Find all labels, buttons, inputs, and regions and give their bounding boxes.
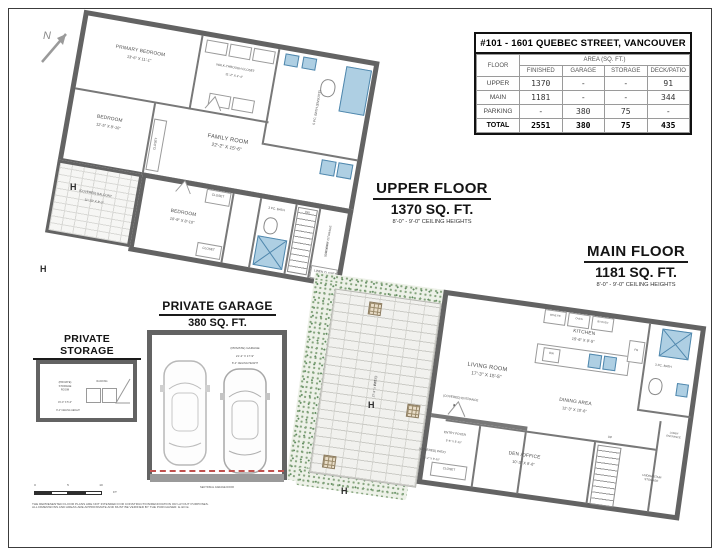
sink xyxy=(587,354,602,370)
main-floor-ceiling: 8'-0" - 9'-0" CEILING HEIGHTS xyxy=(556,282,716,288)
floorplan-page: N #101 - 1601 QUEBEC STREET, VANCOUVER F… xyxy=(0,0,720,556)
upper-floor-title: UPPER FLOOR xyxy=(373,180,491,200)
hose-bib-marker: H xyxy=(40,264,47,274)
col-finished: FINISHED xyxy=(520,66,563,77)
table-header-area: AREA (SQ. FT.) xyxy=(520,55,690,66)
disclaimer: THE REPRESENTED FLOOR PLANS ARE NOT INTE… xyxy=(32,503,372,512)
garage-box: (PRIVATE) GARAGE 21'-2" X 17'-9" 8'-2" C… xyxy=(147,330,287,480)
area-table: #101 - 1601 QUEBEC STREET, VANCOUVER FLO… xyxy=(474,32,692,135)
planter xyxy=(406,404,421,419)
sink xyxy=(602,356,617,372)
shower xyxy=(659,328,693,360)
upper-floor-area: 1370 SQ. FT. xyxy=(348,201,516,217)
table-row-parking: PARKING - 380 75 - xyxy=(477,105,690,119)
door-swing xyxy=(204,94,224,112)
racking-unit xyxy=(86,388,101,403)
hose-bib-marker: H xyxy=(368,400,375,410)
door-swing xyxy=(446,399,468,418)
sink xyxy=(284,53,300,67)
door-swing xyxy=(174,178,194,195)
table-row-upper: UPPER 1370 - - 91 xyxy=(477,77,690,91)
garage-door-line xyxy=(150,470,284,472)
storage-box: (PRIVATE) STORAGE ROOM 15'-0" X 5'-0" 8'… xyxy=(36,360,137,422)
shower xyxy=(253,235,288,270)
main-floor-area: 1181 SQ. FT. xyxy=(552,264,720,280)
table-header-floor: FLOOR xyxy=(477,55,520,77)
storage-room-label: (PRIVATE) STORAGE ROOM 15'-0" X 5'-0" 8'… xyxy=(42,374,88,414)
garage-title: PRIVATE GARAGE xyxy=(159,299,275,316)
table-row-total: TOTAL 2551 380 75 435 xyxy=(477,119,690,133)
main-floor-heading: MAIN FLOOR 1181 SQ. FT. 8'-0" - 9'-0" CE… xyxy=(552,243,720,288)
garage-area: 380 SQ. FT. xyxy=(145,317,290,329)
upper-floor-ceiling: 8'-0" - 9'-0" CEILING HEIGHTS xyxy=(352,219,512,225)
sink xyxy=(301,56,317,70)
address-title: #101 - 1601 QUEBEC STREET, VANCOUVER xyxy=(476,34,690,54)
garage-heading: PRIVATE GARAGE 380 SQ. FT. xyxy=(145,297,290,329)
col-garage: GARAGE xyxy=(562,66,605,77)
garage-door-label: SECTIONAL GARAGE DOOR xyxy=(172,484,262,492)
planter xyxy=(368,301,383,316)
col-storage: STORAGE xyxy=(605,66,648,77)
car-top-view xyxy=(220,365,270,477)
upper-floor-heading: UPPER FLOOR 1370 SQ. FT. 8'-0" - 9'-0" C… xyxy=(348,180,516,225)
compass-n-label: N xyxy=(43,30,51,42)
col-deck-patio: DECK/PATIO xyxy=(647,66,690,77)
planter xyxy=(322,455,337,470)
hose-bib-marker: H xyxy=(70,182,77,192)
sink xyxy=(675,383,689,398)
car-top-view xyxy=(160,357,210,469)
door-swing xyxy=(115,378,131,404)
main-floor-title: MAIN FLOOR xyxy=(584,243,688,263)
washer xyxy=(319,159,336,176)
garage-door-panel xyxy=(150,474,284,482)
table-row-main: MAIN 1181 - - 344 xyxy=(477,91,690,105)
dryer xyxy=(336,162,353,179)
north-arrow-icon: N xyxy=(30,22,78,70)
hose-bib-marker: H xyxy=(341,486,348,496)
storage-title: PRIVATE STORAGE xyxy=(33,333,141,360)
